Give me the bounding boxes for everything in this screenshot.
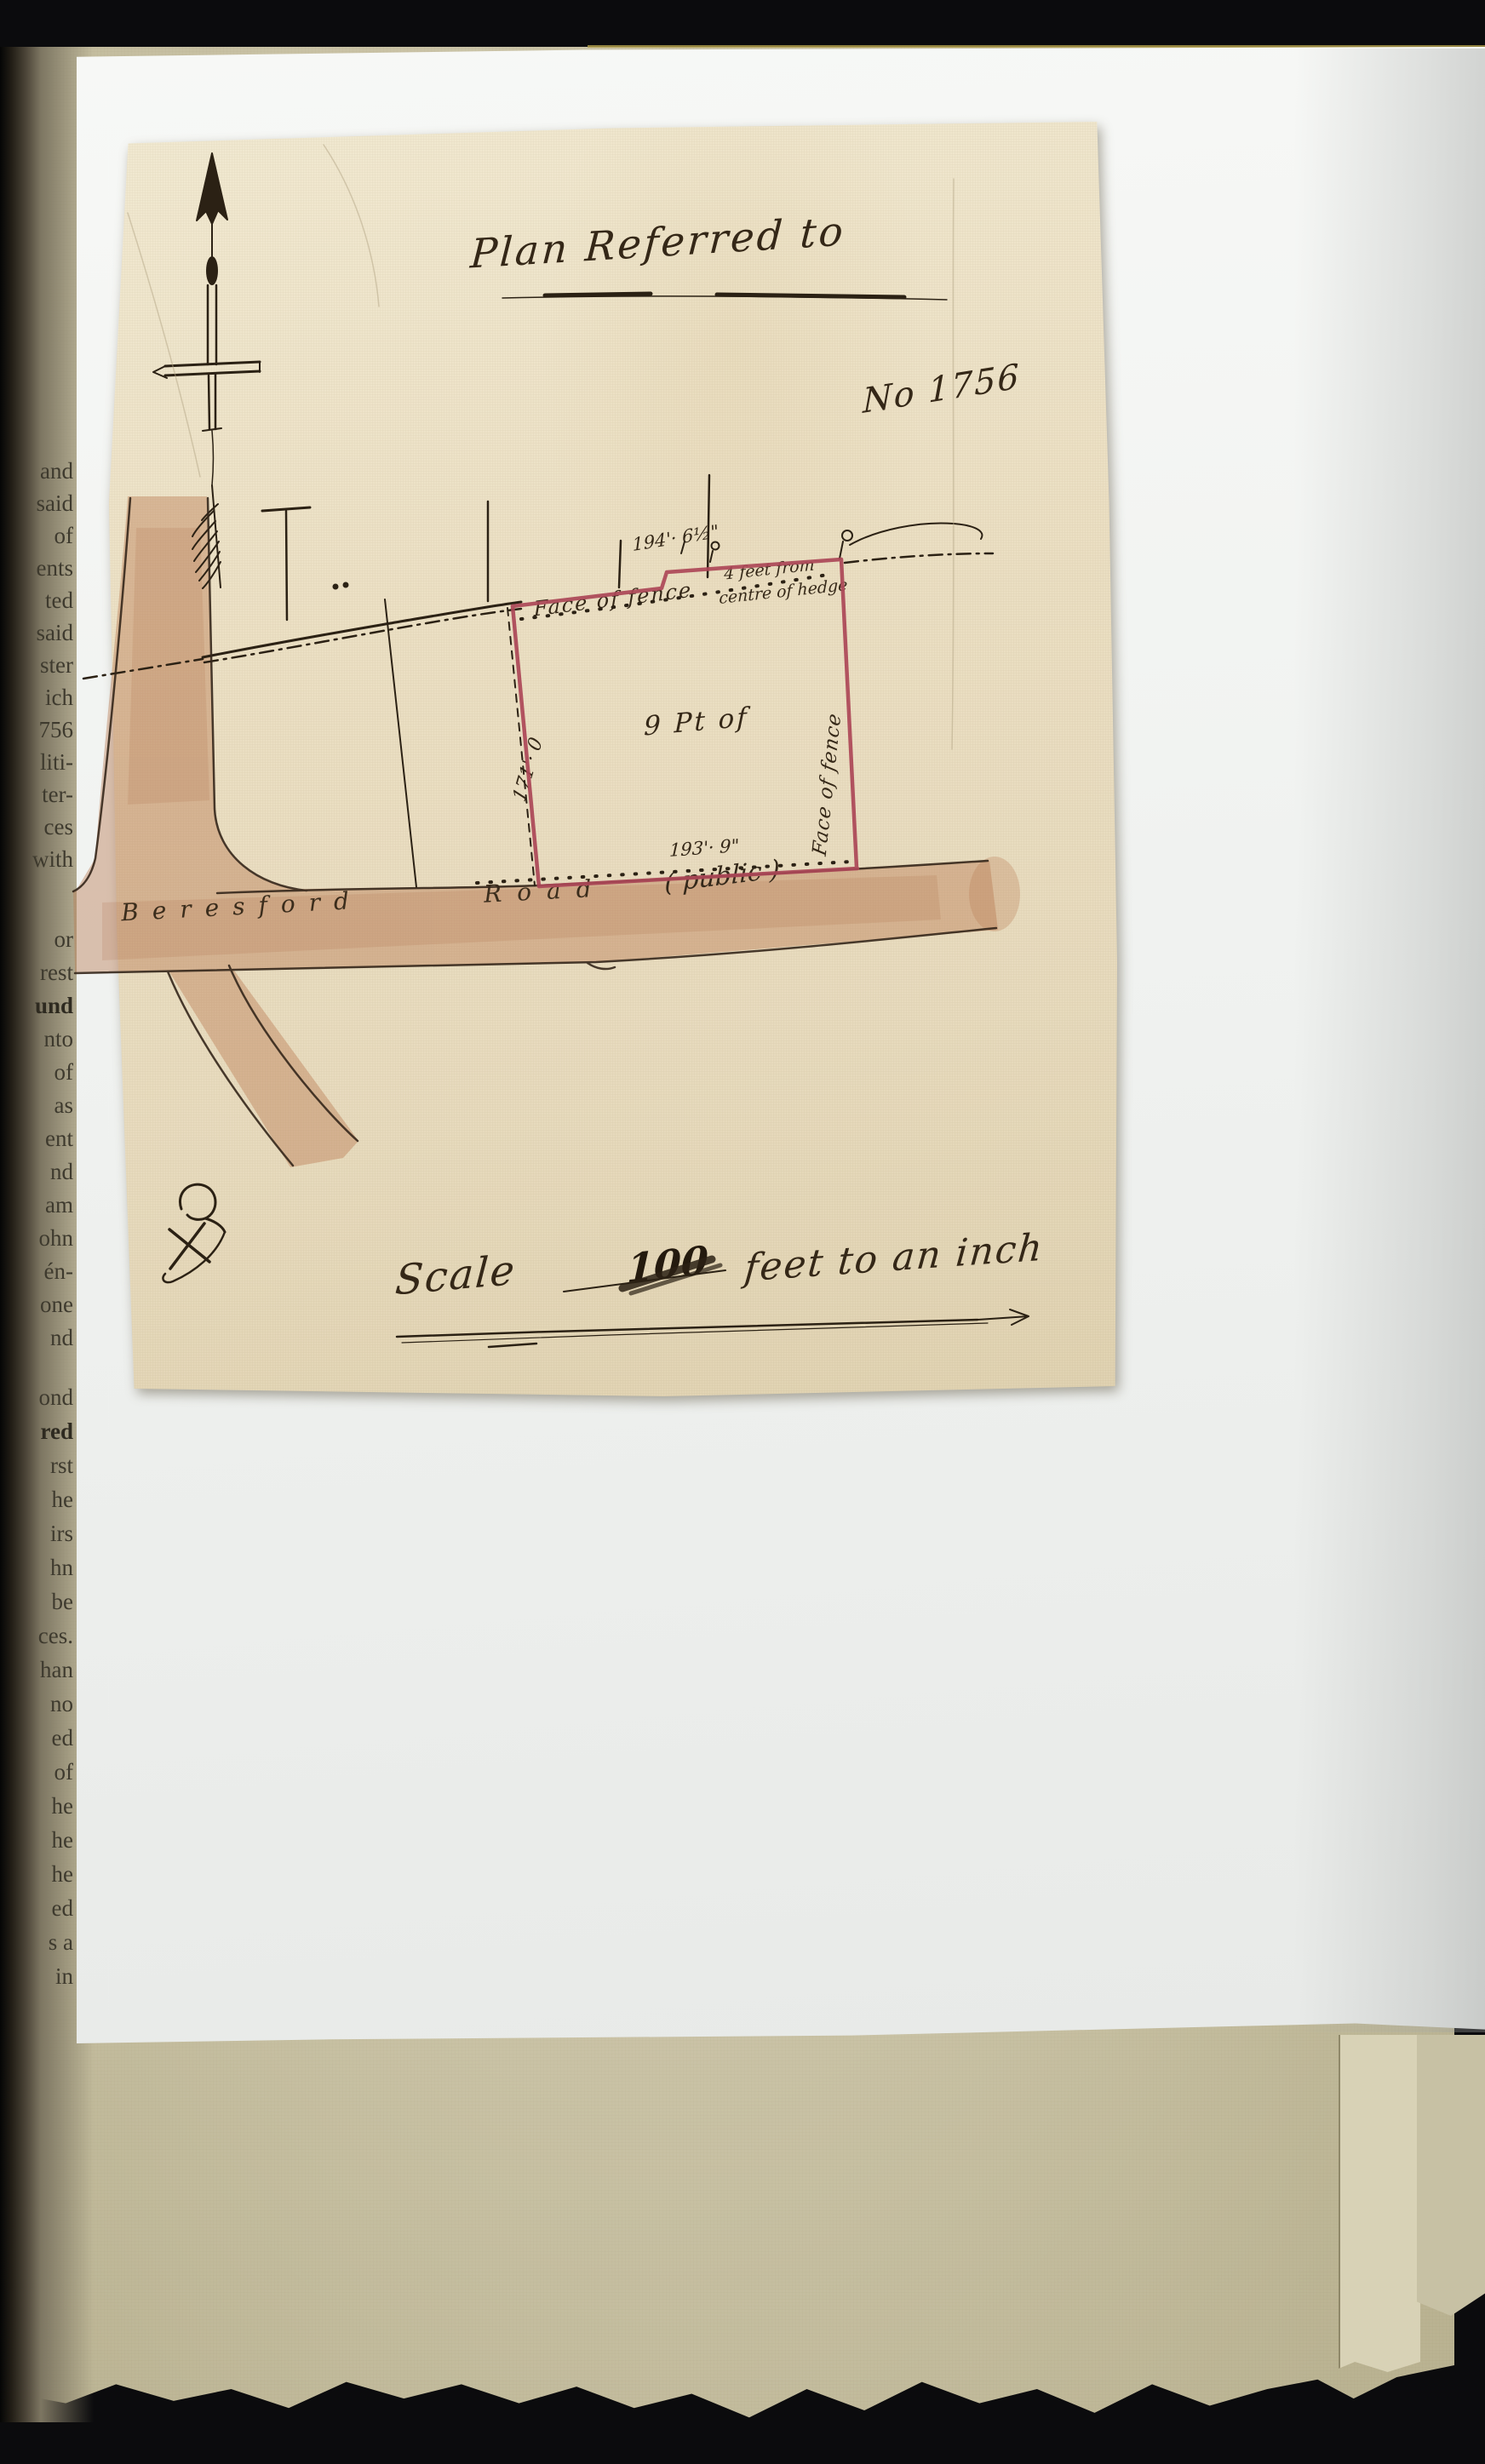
margin-line: said	[0, 622, 73, 645]
margin-line: rst	[0, 1454, 73, 1477]
margin-line: of	[0, 1761, 73, 1784]
margin-line: ent	[0, 1127, 73, 1150]
margin-line: ohn	[0, 1227, 73, 1250]
margin-line: s a	[0, 1931, 73, 1954]
white-backing-sheet	[77, 47, 1485, 2043]
page-curvature-shade	[1294, 49, 1485, 2032]
margin-line: liti-	[0, 751, 73, 774]
margin-line: said	[0, 492, 73, 515]
margin-line: he	[0, 1863, 73, 1886]
margin-line: und	[0, 994, 73, 1017]
scanned-book-page: { "plan": { "title": "Plan Referred to",…	[0, 0, 1485, 2464]
margin-line: as	[0, 1094, 73, 1117]
margin-line: with	[0, 848, 73, 871]
margin-line: nd	[0, 1327, 73, 1349]
margin-line: rest	[0, 961, 73, 984]
margin-line: ich	[0, 686, 73, 709]
margin-line: one	[0, 1293, 73, 1316]
margin-line: ces.	[0, 1625, 73, 1647]
margin-line: he	[0, 1795, 73, 1818]
margin-line: ond	[0, 1386, 73, 1409]
margin-line: in	[0, 1965, 73, 1988]
margin-line: am	[0, 1194, 73, 1217]
margin-line: of	[0, 1061, 73, 1084]
margin-line: hn	[0, 1556, 73, 1579]
margin-line: 756	[0, 719, 73, 742]
margin-line: ed	[0, 1897, 73, 1920]
margin-line: ces	[0, 816, 73, 839]
margin-line: he	[0, 1488, 73, 1511]
margin-line: of	[0, 524, 73, 547]
margin-line: nto	[0, 1028, 73, 1051]
margin-line: ents	[0, 557, 73, 580]
margin-line: ter-	[0, 783, 73, 806]
scale-struck-value: 100	[626, 1237, 708, 1292]
margin-line: be	[0, 1590, 73, 1613]
margin-line: and	[0, 460, 73, 483]
margin-line: ster	[0, 654, 73, 677]
margin-line: én-	[0, 1260, 73, 1283]
margin-line: irs	[0, 1522, 73, 1545]
margin-line: he	[0, 1829, 73, 1852]
margin-line: no	[0, 1693, 73, 1716]
margin-line: red	[0, 1420, 73, 1443]
margin-line: ed	[0, 1727, 73, 1750]
margin-line: ted	[0, 589, 73, 612]
margin-line: han	[0, 1659, 73, 1682]
margin-line: nd	[0, 1160, 73, 1183]
under-page-edge	[1339, 2035, 1420, 2375]
under-page-edge	[1417, 2035, 1485, 2316]
margin-line: or	[0, 928, 73, 951]
